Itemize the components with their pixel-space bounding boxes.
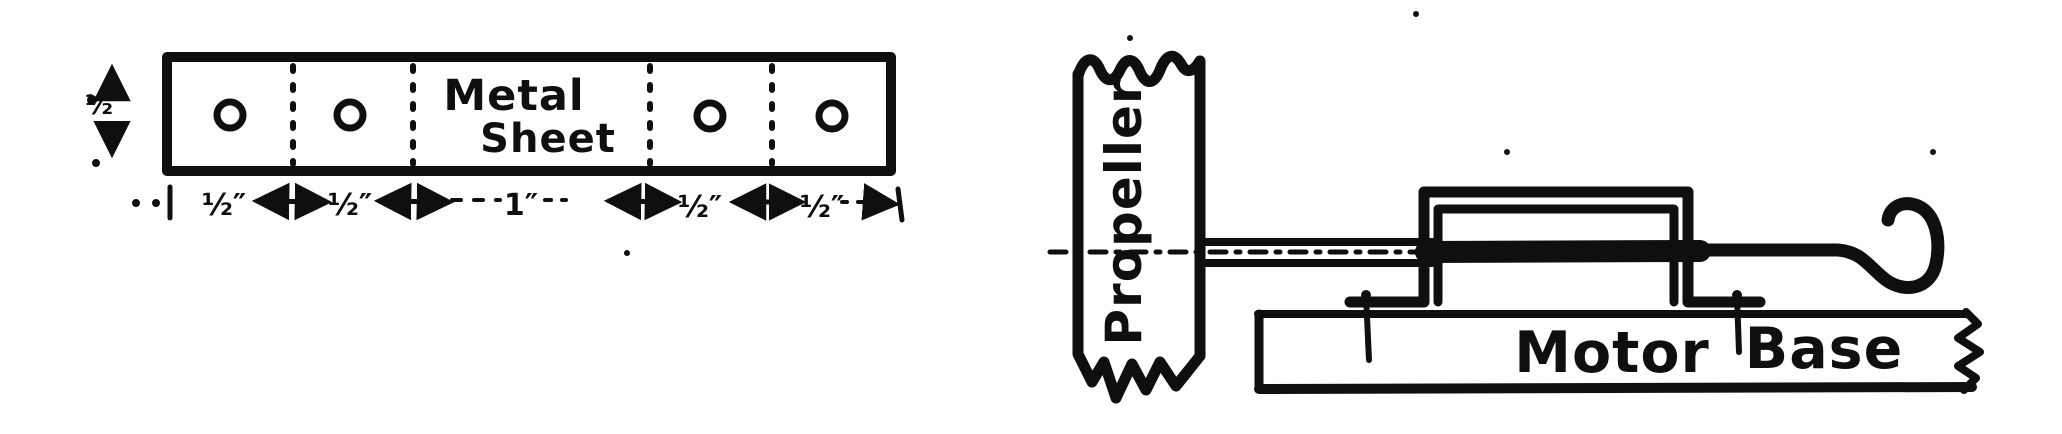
- dimension-arrow-end: [866, 202, 894, 204]
- ink-speck: [92, 159, 100, 167]
- segment-dimension-label: ½″: [678, 190, 722, 225]
- diagram-canvas: Metal Sheet ½″ ½″ ½″ 1″ ½″ ½″: [0, 0, 2062, 434]
- shaft-through-bearing: [1426, 251, 1700, 252]
- ink-speck: [152, 199, 160, 207]
- base-label-motor: Motor: [1514, 320, 1709, 386]
- ink-speck: [1504, 149, 1510, 155]
- rubber-hook: [1690, 204, 1938, 288]
- dimension-arrow: [380, 201, 448, 202]
- segment-dimension-label: 1″: [504, 188, 538, 223]
- brad-fastener: [1366, 296, 1369, 360]
- segment-dimension-label: ½″: [328, 188, 372, 223]
- base-label-base: Base: [1745, 316, 1904, 382]
- ink-speck: [1127, 35, 1133, 41]
- rivet-hole: [697, 103, 723, 129]
- base-break-edge: [1958, 312, 1980, 390]
- sheet-label-line1: Metal: [443, 71, 584, 121]
- ink-speck: [132, 199, 140, 207]
- segment-dimension-label: ½″: [800, 190, 844, 225]
- rivet-hole: [819, 103, 845, 129]
- ink-speck: [1930, 149, 1936, 155]
- base-bottom-edge: [1259, 387, 1972, 389]
- rivet-hole: [337, 102, 363, 128]
- rivet-hole: [217, 102, 243, 128]
- segment-dimension-label: ½″: [202, 188, 246, 223]
- propeller-assembly-figure: Propeller Motor Base: [1050, 11, 1980, 398]
- brad-fastener: [1737, 296, 1739, 352]
- metal-sheet-figure: Metal Sheet ½″ ½″ ½″ 1″ ½″ ½″: [85, 57, 902, 256]
- propeller-label: Propeller: [1095, 78, 1153, 345]
- height-dimension-label: ½″: [85, 90, 125, 121]
- dimension-tick: [898, 189, 902, 220]
- dimension-arrow: [258, 201, 326, 202]
- brad-head: [1732, 290, 1742, 300]
- ink-speck: [1413, 11, 1419, 17]
- brad-head: [1361, 290, 1371, 300]
- dimension-arrow: [610, 201, 676, 202]
- scanned-diagram-page: Metal Sheet ½″ ½″ ½″ 1″ ½″ ½″: [0, 0, 2062, 434]
- sheet-label-line2: Sheet: [480, 116, 616, 162]
- ink-speck: [624, 250, 630, 256]
